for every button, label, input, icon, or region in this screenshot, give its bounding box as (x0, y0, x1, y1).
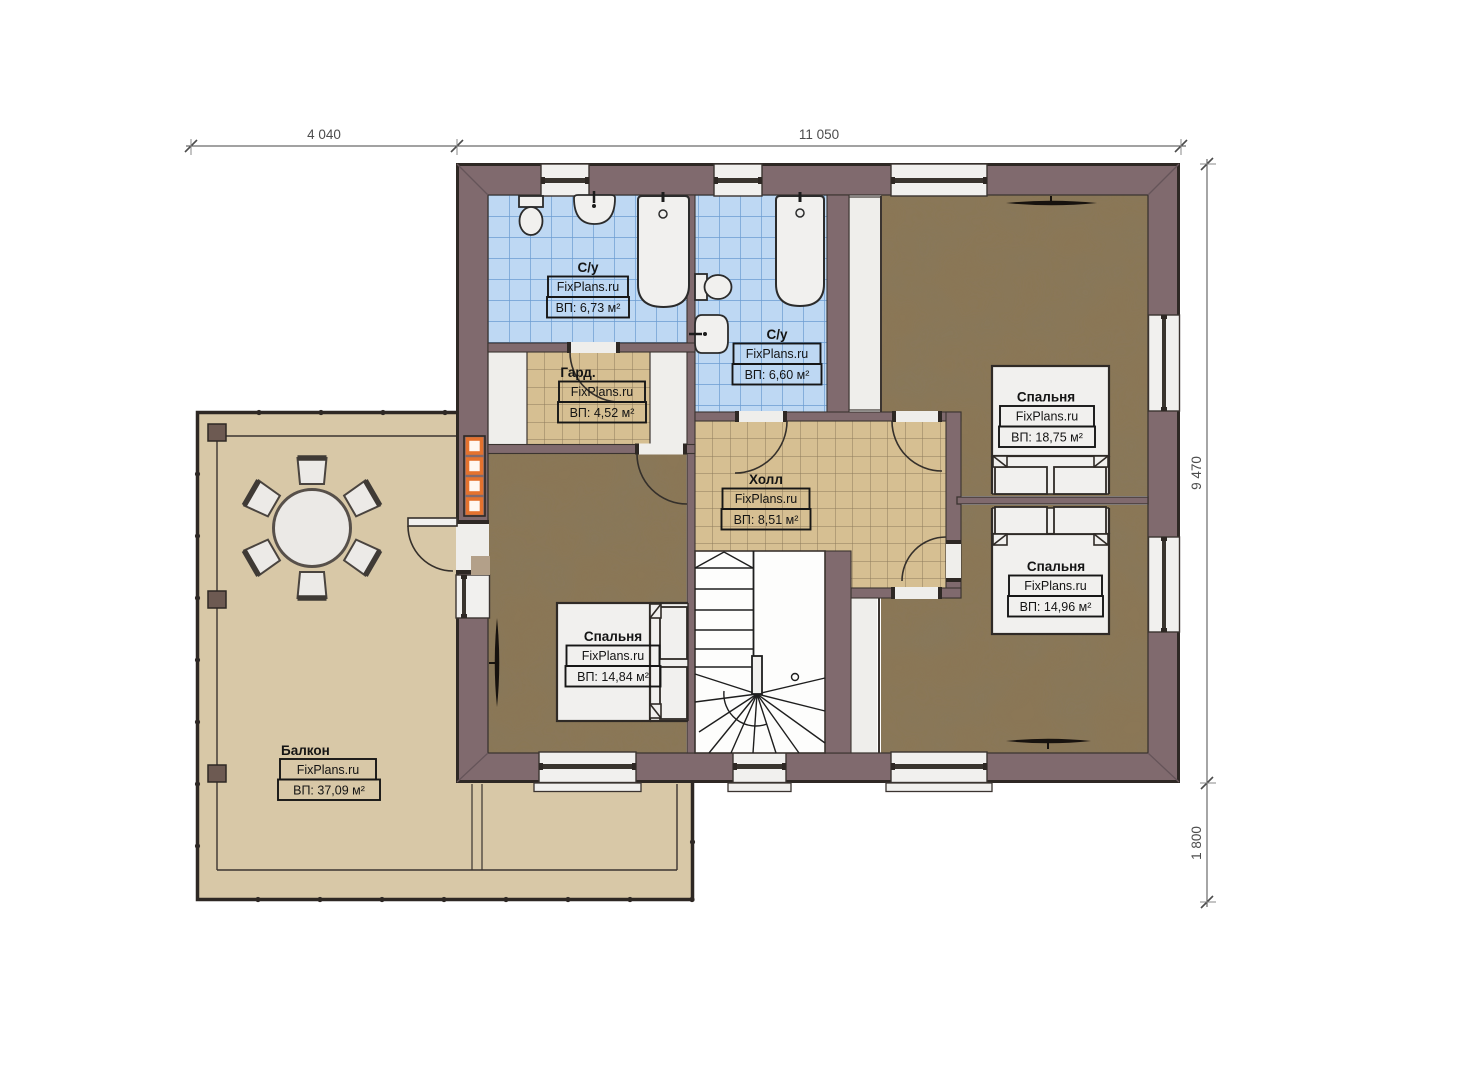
svg-text:1 800: 1 800 (1189, 826, 1204, 860)
svg-text:FixPlans.ru: FixPlans.ru (571, 385, 634, 399)
svg-text:Спальня: Спальня (1027, 559, 1085, 574)
svg-text:FixPlans.ru: FixPlans.ru (297, 763, 360, 777)
svg-text:С/у: С/у (577, 260, 599, 275)
svg-text:11 050: 11 050 (799, 127, 839, 142)
svg-text:ВП: 6,73 м²: ВП: 6,73 м² (556, 301, 621, 315)
svg-text:ВП: 14,96 м²: ВП: 14,96 м² (1020, 600, 1092, 614)
svg-text:Гард.: Гард. (560, 365, 595, 380)
svg-text:Холл: Холл (749, 472, 783, 487)
svg-text:FixPlans.ru: FixPlans.ru (746, 347, 809, 361)
svg-text:FixPlans.ru: FixPlans.ru (557, 280, 620, 294)
svg-text:Спальня: Спальня (584, 629, 642, 644)
svg-text:FixPlans.ru: FixPlans.ru (735, 492, 798, 506)
svg-text:FixPlans.ru: FixPlans.ru (1024, 579, 1087, 593)
svg-text:ВП: 6,60 м²: ВП: 6,60 м² (745, 368, 810, 382)
svg-text:FixPlans.ru: FixPlans.ru (582, 649, 645, 663)
svg-text:С/у: С/у (766, 327, 788, 342)
svg-text:ВП: 4,52 м²: ВП: 4,52 м² (570, 406, 635, 420)
svg-text:9 470: 9 470 (1189, 456, 1204, 490)
svg-text:ВП: 18,75 м²: ВП: 18,75 м² (1011, 431, 1083, 445)
svg-text:ВП: 8,51 м²: ВП: 8,51 м² (734, 513, 799, 527)
svg-text:Балкон: Балкон (281, 743, 330, 758)
svg-text:4 040: 4 040 (307, 127, 341, 142)
svg-text:ВП: 14,84 м²: ВП: 14,84 м² (577, 670, 649, 684)
svg-text:FixPlans.ru: FixPlans.ru (1016, 410, 1079, 424)
svg-text:Спальня: Спальня (1017, 390, 1075, 405)
svg-text:ВП: 37,09 м²: ВП: 37,09 м² (293, 784, 365, 798)
